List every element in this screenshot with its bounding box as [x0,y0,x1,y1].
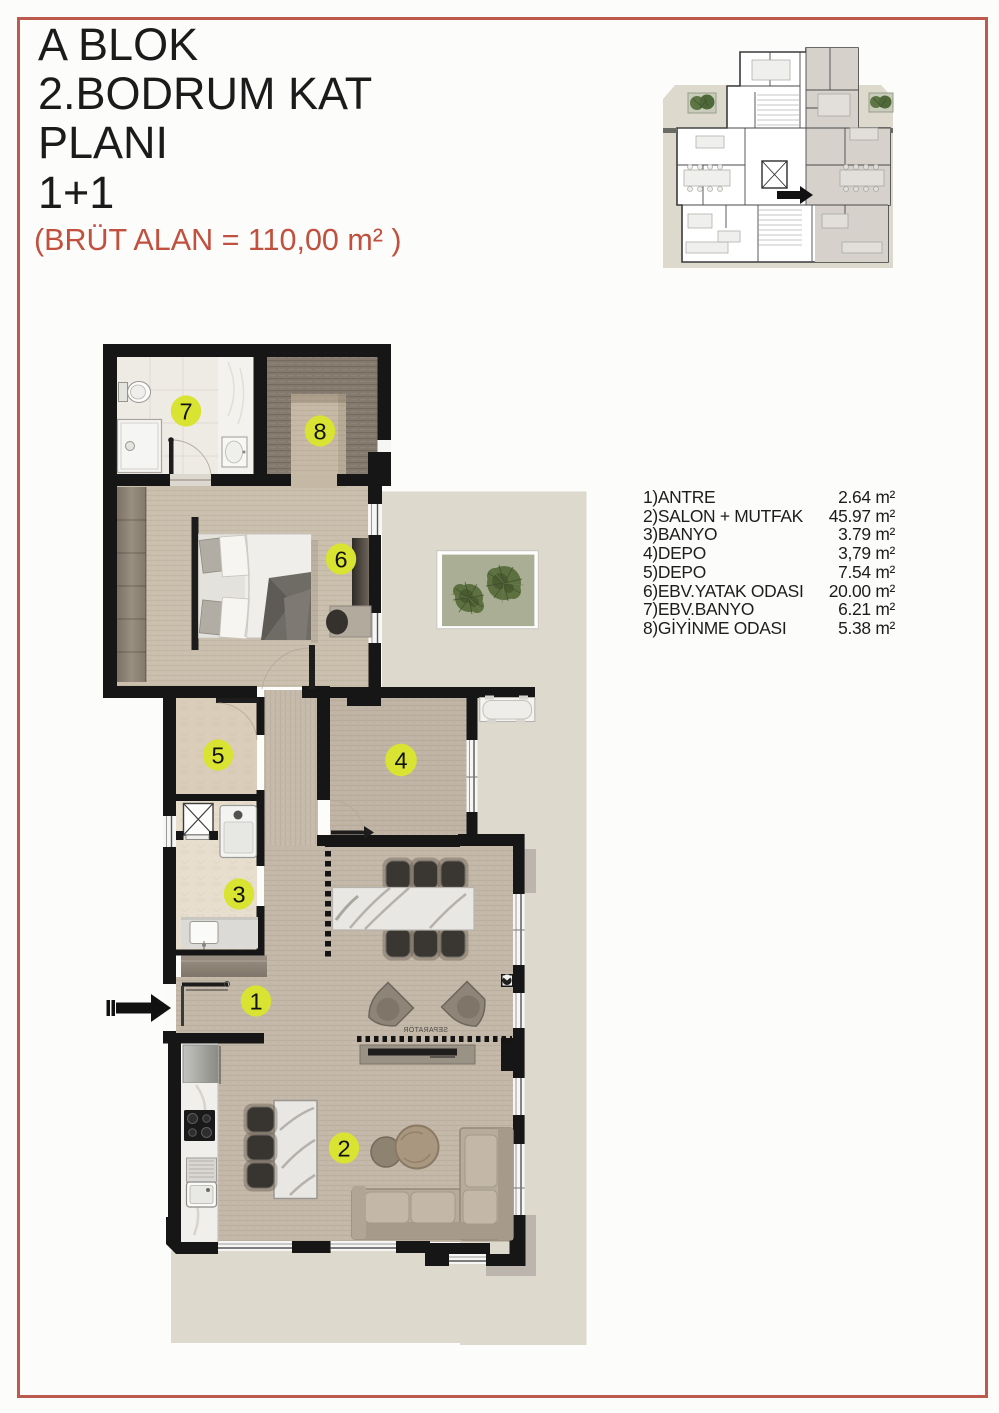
svg-text:5: 5 [211,742,224,768]
svg-text:2: 2 [337,1135,350,1161]
svg-text:1: 1 [249,988,262,1014]
svg-text:6: 6 [334,546,347,572]
svg-text:SEPARATÖR: SEPARATÖR [403,1026,448,1034]
svg-text:7: 7 [179,398,192,424]
svg-text:8: 8 [313,418,326,444]
svg-text:4: 4 [394,747,407,773]
svg-text:3: 3 [232,881,245,907]
